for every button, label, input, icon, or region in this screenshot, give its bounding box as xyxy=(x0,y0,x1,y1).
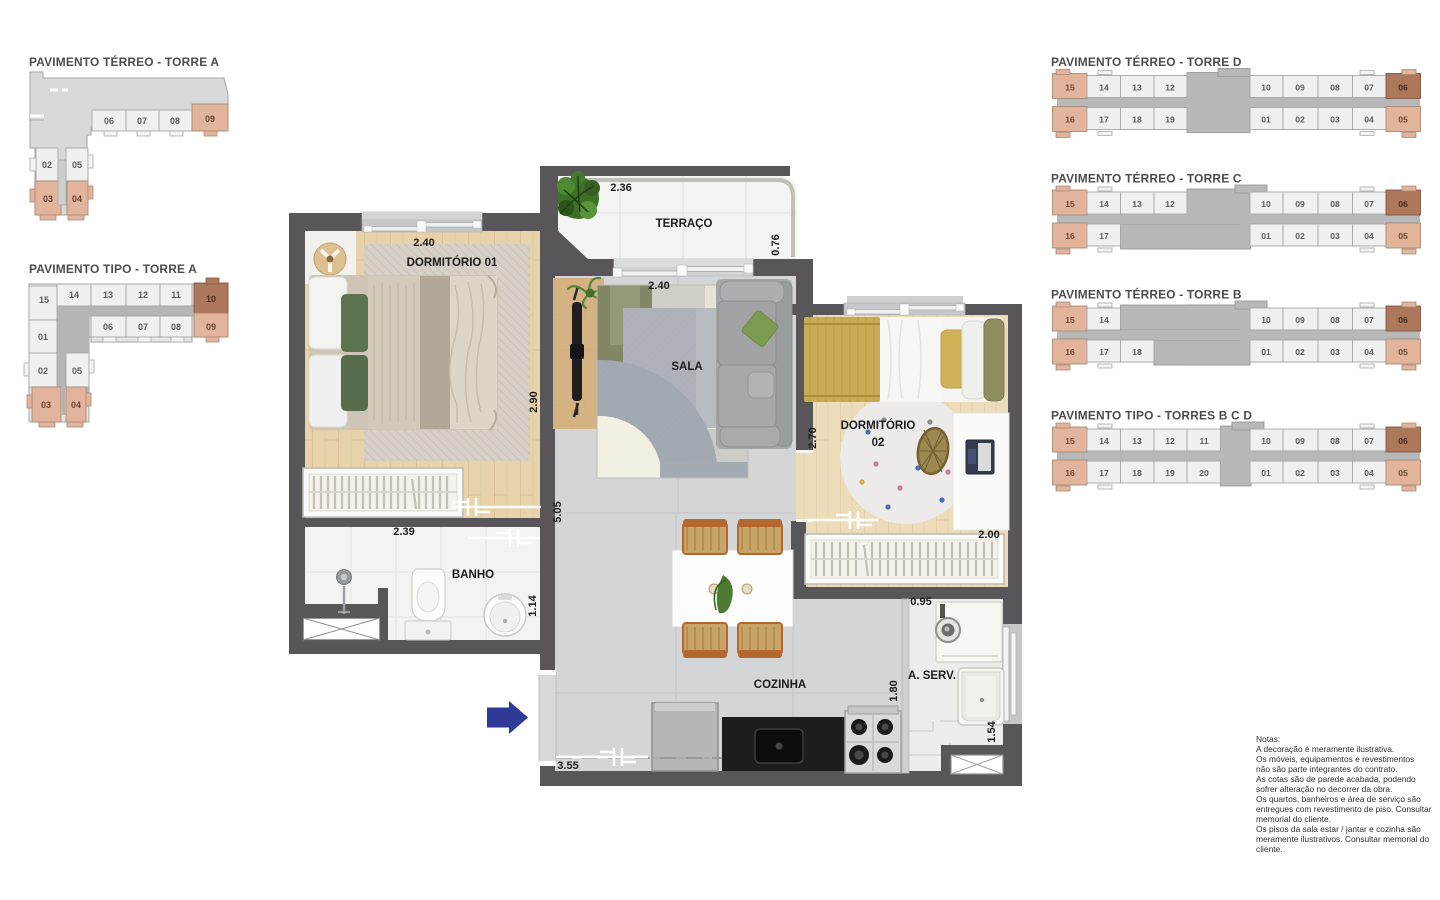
svg-text:PAVIMENTO TÉRREO - TORRE D: PAVIMENTO TÉRREO - TORRE D xyxy=(1051,54,1242,69)
svg-text:05: 05 xyxy=(1398,231,1408,241)
svg-text:08: 08 xyxy=(171,322,181,332)
svg-text:14: 14 xyxy=(1099,315,1109,325)
svg-text:meramente ilustrativos. Consul: meramente ilustrativos. Consultar memori… xyxy=(1256,834,1429,844)
svg-text:09: 09 xyxy=(1295,315,1305,325)
svg-text:02: 02 xyxy=(1295,468,1305,478)
svg-text:DORMITÓRIO 01: DORMITÓRIO 01 xyxy=(407,256,498,269)
svg-text:06: 06 xyxy=(1398,199,1408,209)
svg-text:Os pisos da sala estar / janta: Os pisos da sala estar / jantar e cozinh… xyxy=(1256,824,1421,834)
svg-text:SALA: SALA xyxy=(671,361,702,373)
svg-text:06: 06 xyxy=(103,322,113,332)
svg-text:06: 06 xyxy=(1398,83,1408,93)
svg-text:02: 02 xyxy=(42,160,52,170)
svg-text:15: 15 xyxy=(1065,436,1075,446)
svg-text:A. SERV.: A. SERV. xyxy=(908,670,956,682)
svg-text:02: 02 xyxy=(38,366,48,376)
svg-text:2.00: 2.00 xyxy=(978,529,999,541)
svg-text:não são parte integrantes do c: não são parte integrantes do contrato. xyxy=(1256,764,1398,774)
svg-text:07: 07 xyxy=(1364,199,1374,209)
svg-text:14: 14 xyxy=(1099,199,1109,209)
svg-text:0.76: 0.76 xyxy=(770,234,782,255)
svg-text:2.39: 2.39 xyxy=(393,526,414,538)
svg-text:05: 05 xyxy=(1398,115,1408,125)
svg-text:3.55: 3.55 xyxy=(557,760,578,772)
svg-text:04: 04 xyxy=(1364,468,1374,478)
svg-text:09: 09 xyxy=(1295,83,1305,93)
svg-text:sofrer alteração no decorrer d: sofrer alteração no decorrer da obra. xyxy=(1256,784,1392,794)
svg-text:11: 11 xyxy=(171,290,181,300)
svg-text:02: 02 xyxy=(1295,231,1305,241)
svg-text:PAVIMENTO TIPO - TORRE A: PAVIMENTO TIPO - TORRE A xyxy=(29,262,197,276)
svg-text:03: 03 xyxy=(43,194,53,204)
svg-text:08: 08 xyxy=(1330,83,1340,93)
svg-text:05: 05 xyxy=(1398,468,1408,478)
svg-text:16: 16 xyxy=(1065,231,1075,241)
svg-text:03: 03 xyxy=(1330,468,1340,478)
svg-text:09: 09 xyxy=(206,322,216,332)
svg-text:07: 07 xyxy=(137,116,147,126)
svg-text:19: 19 xyxy=(1165,115,1175,125)
svg-text:09: 09 xyxy=(205,114,215,124)
svg-text:12: 12 xyxy=(1165,199,1175,209)
svg-text:01: 01 xyxy=(1261,468,1271,478)
svg-text:09: 09 xyxy=(1295,199,1305,209)
svg-text:04: 04 xyxy=(1364,347,1374,357)
svg-text:07: 07 xyxy=(1364,315,1374,325)
svg-text:15: 15 xyxy=(39,295,49,305)
svg-text:01: 01 xyxy=(1261,115,1271,125)
svg-text:TERRAÇO: TERRAÇO xyxy=(656,218,713,230)
svg-text:03: 03 xyxy=(41,400,51,410)
svg-text:10: 10 xyxy=(1261,436,1271,446)
svg-text:03: 03 xyxy=(1330,115,1340,125)
svg-text:16: 16 xyxy=(1065,468,1075,478)
svg-text:02: 02 xyxy=(872,437,885,449)
svg-text:COZINHA: COZINHA xyxy=(754,679,806,691)
svg-text:15: 15 xyxy=(1065,83,1075,93)
svg-text:PAVIMENTO TÉRREO - TORRE C: PAVIMENTO TÉRREO - TORRE C xyxy=(1051,171,1242,186)
svg-text:19: 19 xyxy=(1165,468,1175,478)
svg-text:13: 13 xyxy=(103,290,113,300)
svg-text:5.05: 5.05 xyxy=(552,501,564,522)
svg-text:PAVIMENTO TÉRREO - TORRE A: PAVIMENTO TÉRREO - TORRE A xyxy=(29,54,219,69)
svg-text:08: 08 xyxy=(1330,436,1340,446)
svg-text:2.36: 2.36 xyxy=(610,182,631,194)
svg-text:18: 18 xyxy=(1132,347,1142,357)
svg-text:1.14: 1.14 xyxy=(527,594,539,616)
svg-text:04: 04 xyxy=(71,400,81,410)
svg-text:2.70: 2.70 xyxy=(807,427,819,448)
svg-text:02: 02 xyxy=(1295,347,1305,357)
svg-text:BANHO: BANHO xyxy=(452,569,494,581)
svg-text:10: 10 xyxy=(1261,83,1271,93)
svg-text:03: 03 xyxy=(1330,347,1340,357)
svg-text:1.54: 1.54 xyxy=(986,720,998,742)
svg-text:2.90: 2.90 xyxy=(528,391,540,412)
svg-text:13: 13 xyxy=(1132,436,1142,446)
svg-text:07: 07 xyxy=(138,322,148,332)
svg-text:1.80: 1.80 xyxy=(888,680,900,701)
svg-text:As cotas são de parede acabada: As cotas são de parede acabada, podendo xyxy=(1256,774,1416,784)
svg-text:05: 05 xyxy=(72,366,82,376)
svg-text:17: 17 xyxy=(1099,115,1109,125)
svg-text:16: 16 xyxy=(1065,115,1075,125)
svg-text:12: 12 xyxy=(138,290,148,300)
svg-text:08: 08 xyxy=(1330,199,1340,209)
svg-text:18: 18 xyxy=(1132,468,1142,478)
svg-text:20: 20 xyxy=(1199,468,1209,478)
svg-text:17: 17 xyxy=(1099,347,1109,357)
svg-text:12: 12 xyxy=(1165,83,1175,93)
svg-text:01: 01 xyxy=(1261,347,1271,357)
svg-text:PAVIMENTO TIPO - TORRES B C D: PAVIMENTO TIPO - TORRES B C D xyxy=(1051,409,1252,423)
svg-text:10: 10 xyxy=(1261,315,1271,325)
svg-text:entregues com revestimento de: entregues com revestimento de piso. Cons… xyxy=(1256,804,1432,814)
svg-text:16: 16 xyxy=(1065,347,1075,357)
svg-text:17: 17 xyxy=(1099,468,1109,478)
svg-text:08: 08 xyxy=(1330,315,1340,325)
svg-text:Os quartos, banheiros e área d: Os quartos, banheiros e área de serviço … xyxy=(1256,794,1421,804)
svg-text:0.95: 0.95 xyxy=(910,596,931,608)
svg-text:2.40: 2.40 xyxy=(413,237,434,249)
svg-text:06: 06 xyxy=(1398,436,1408,446)
svg-text:03: 03 xyxy=(1330,231,1340,241)
svg-text:04: 04 xyxy=(1364,115,1374,125)
svg-text:17: 17 xyxy=(1099,231,1109,241)
svg-text:cliente.: cliente. xyxy=(1256,844,1283,854)
svg-text:10: 10 xyxy=(206,294,216,304)
svg-text:15: 15 xyxy=(1065,315,1075,325)
svg-text:14: 14 xyxy=(69,290,79,300)
svg-text:04: 04 xyxy=(72,194,82,204)
svg-text:07: 07 xyxy=(1364,436,1374,446)
svg-text:10: 10 xyxy=(1261,199,1271,209)
svg-text:13: 13 xyxy=(1132,83,1142,93)
svg-text:07: 07 xyxy=(1364,83,1374,93)
svg-text:14: 14 xyxy=(1099,436,1109,446)
svg-text:memorial do cliente.: memorial do cliente. xyxy=(1256,814,1331,824)
svg-text:18: 18 xyxy=(1132,115,1142,125)
svg-text:05: 05 xyxy=(1398,347,1408,357)
svg-text:12: 12 xyxy=(1165,436,1175,446)
svg-text:06: 06 xyxy=(1398,315,1408,325)
svg-text:DORMITÓRIO: DORMITÓRIO xyxy=(841,419,916,432)
svg-text:11: 11 xyxy=(1199,436,1208,446)
svg-text:01: 01 xyxy=(38,332,48,342)
svg-text:14: 14 xyxy=(1099,83,1109,93)
svg-text:PAVIMENTO TÉRREO - TORRE B: PAVIMENTO TÉRREO - TORRE B xyxy=(1051,287,1242,302)
svg-text:13: 13 xyxy=(1132,199,1142,209)
svg-text:15: 15 xyxy=(1065,199,1075,209)
svg-text:06: 06 xyxy=(104,116,114,126)
svg-text:02: 02 xyxy=(1295,115,1305,125)
svg-text:A decoração é meramente ilustr: A decoração é meramente ilustrativa. xyxy=(1256,744,1394,754)
svg-text:09: 09 xyxy=(1295,436,1305,446)
svg-text:2.40: 2.40 xyxy=(648,280,669,292)
svg-text:Notas:: Notas: xyxy=(1256,734,1280,744)
svg-text:08: 08 xyxy=(170,116,180,126)
svg-text:04: 04 xyxy=(1364,231,1374,241)
svg-text:01: 01 xyxy=(1261,231,1271,241)
svg-text:05: 05 xyxy=(72,160,82,170)
svg-text:Os móveis, equipamentos e reve: Os móveis, equipamentos e revestimentos xyxy=(1256,754,1414,764)
